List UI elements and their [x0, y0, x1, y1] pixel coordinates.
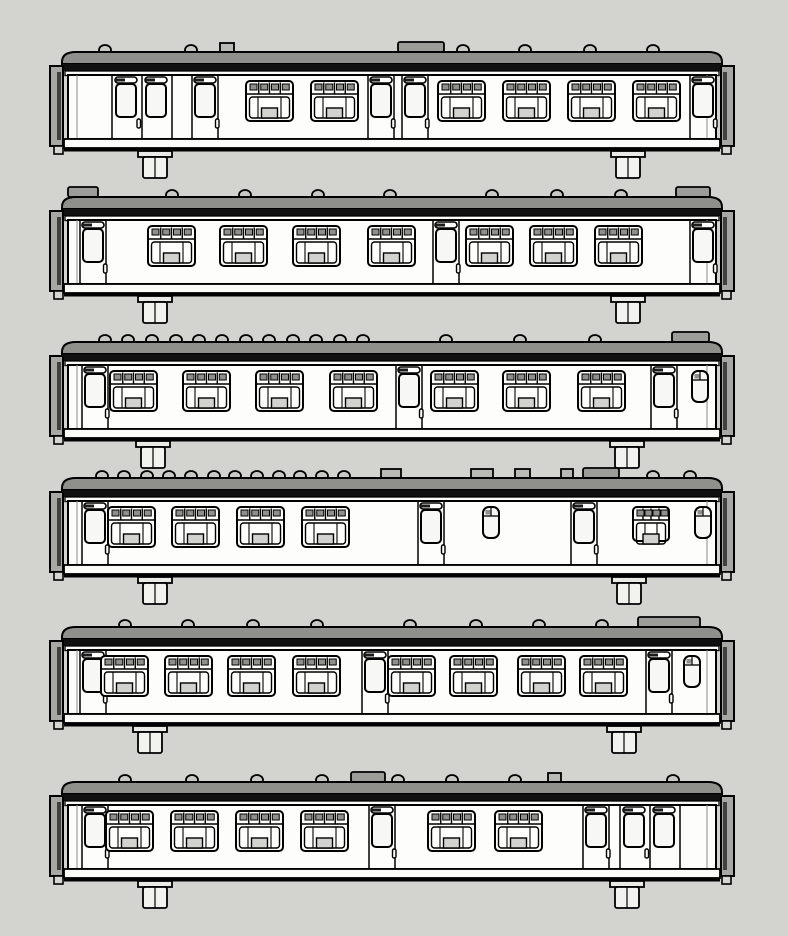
sliding-vent-pane	[454, 814, 461, 820]
sliding-vent-pane	[443, 814, 450, 820]
sliding-vent-pane	[446, 374, 453, 380]
door-handle	[442, 545, 446, 554]
door-handle	[675, 409, 679, 418]
sliding-vent-pane	[572, 84, 579, 90]
sliding-vent-pane	[272, 814, 279, 820]
buffer-step	[54, 876, 63, 884]
window-sill-block	[511, 838, 527, 848]
sliding-vent-pane	[235, 229, 242, 235]
sliding-vent-pane	[184, 229, 191, 235]
sliding-vent-pane	[246, 229, 253, 235]
roof-tank-box	[398, 42, 444, 52]
sliding-vent-pane	[208, 510, 215, 516]
roof-shadow-stripe	[63, 354, 721, 361]
sliding-vent-pane	[698, 510, 703, 515]
sliding-vent-pane	[306, 510, 313, 516]
window-sill-block	[124, 534, 140, 544]
sliding-vent-pane	[454, 659, 461, 665]
sliding-vent-pane	[492, 229, 499, 235]
door-vent-slide	[399, 369, 408, 372]
sliding-vent-pane	[442, 84, 449, 90]
gangway-shadow	[723, 802, 727, 870]
window-sill-block	[594, 398, 610, 408]
sliding-vent-pane	[474, 84, 481, 90]
sliding-vent-pane	[254, 659, 261, 665]
window-sill-block	[181, 683, 197, 693]
door-vent-slide	[371, 79, 380, 82]
sliding-vent-pane	[175, 814, 182, 820]
window-sill-block	[122, 838, 138, 848]
door-handle	[714, 264, 718, 273]
sliding-vent-pane	[457, 374, 464, 380]
window-sill-block	[454, 108, 470, 118]
sliding-vent-pane	[146, 374, 153, 380]
underframe-flange	[138, 881, 172, 887]
sliding-vent-pane	[329, 659, 336, 665]
underframe-flange	[138, 577, 172, 583]
sliding-vent-pane	[112, 510, 119, 516]
sliding-vent-pane	[383, 229, 390, 235]
gangway-end-slab	[721, 796, 734, 876]
sliding-vent-pane	[507, 84, 514, 90]
door-handle	[595, 545, 599, 554]
door-vent-slide	[85, 369, 94, 372]
window-sill-block	[188, 534, 204, 544]
sliding-vent-pane	[327, 814, 334, 820]
door-vent-slide	[693, 79, 702, 82]
sliding-vent-pane	[262, 814, 269, 820]
door-droplight-window	[399, 374, 419, 407]
gangway-end-slab	[721, 492, 734, 572]
roof-tank-box	[68, 187, 98, 197]
sliding-vent-pane	[486, 659, 493, 665]
coach-2-drawing	[0, 181, 788, 333]
sliding-vent-pane	[645, 510, 652, 516]
sliding-vent-pane	[261, 84, 268, 90]
door-droplight-window	[85, 510, 105, 543]
sliding-vent-pane	[105, 659, 112, 665]
door-vent-slide	[116, 79, 125, 82]
sliding-vent-pane	[356, 374, 363, 380]
window-sill-block	[117, 683, 133, 693]
window-sill-block	[244, 683, 260, 693]
buffer-step	[722, 572, 731, 580]
sliding-vent-pane	[534, 229, 541, 235]
coach-2-side-elevation	[0, 181, 788, 333]
sliding-vent-pane	[424, 659, 431, 665]
coach-6-drawing	[0, 766, 788, 918]
door-vent-slide	[649, 654, 658, 657]
sliding-vent-pane	[464, 814, 471, 820]
window-sill-block	[534, 683, 550, 693]
buffer-step	[54, 572, 63, 580]
window-sill-block	[519, 108, 535, 118]
gangway-end-slab	[50, 66, 63, 146]
coach-roof	[62, 478, 722, 490]
window-sill-block	[447, 398, 463, 408]
door-handle	[420, 409, 424, 418]
sliding-vent-pane	[137, 659, 144, 665]
underframe-flange	[133, 726, 167, 732]
door-handle	[216, 119, 220, 128]
sliding-vent-pane	[232, 659, 239, 665]
buffer-step	[722, 876, 731, 884]
coach-roof	[62, 782, 722, 794]
door-handle	[714, 119, 718, 128]
coach-6-side-elevation	[0, 766, 788, 918]
door-handle	[645, 849, 649, 858]
door-vent-slide	[83, 224, 92, 227]
sliding-vent-pane	[531, 814, 538, 820]
window-sill-block	[596, 683, 612, 693]
gangway-end-slab	[50, 796, 63, 876]
gangway-end-slab	[50, 356, 63, 436]
window-sill-block	[384, 253, 400, 263]
door-droplight-window	[365, 659, 385, 692]
sliding-vent-pane	[659, 84, 666, 90]
sliding-vent-pane	[584, 659, 591, 665]
sliding-vent-pane	[256, 229, 263, 235]
sliding-vent-pane	[502, 229, 509, 235]
sliding-vent-pane	[687, 659, 692, 664]
gangway-end-slab	[50, 641, 63, 721]
sliding-vent-pane	[521, 814, 528, 820]
sliding-vent-pane	[465, 659, 472, 665]
gangway-shadow	[57, 647, 61, 715]
sliding-vent-pane	[594, 84, 601, 90]
buffer-step	[722, 436, 731, 444]
door-vent-slide	[654, 809, 663, 812]
gangway-end-slab	[721, 66, 734, 146]
window-sill-block	[466, 683, 482, 693]
sliding-vent-pane	[319, 229, 326, 235]
sliding-vent-pane	[116, 659, 123, 665]
door-droplight-window	[195, 84, 215, 117]
sliding-vent-pane	[271, 374, 278, 380]
door-vent-slide	[83, 654, 92, 657]
sliding-vent-pane	[326, 84, 333, 90]
sliding-vent-pane	[695, 374, 700, 379]
window-sill-block	[327, 108, 343, 118]
door-handle	[457, 264, 461, 273]
sliding-vent-pane	[545, 229, 552, 235]
window-sill-block	[164, 253, 180, 263]
sill-band	[64, 139, 720, 148]
gangway-end-slab	[721, 211, 734, 291]
roof-shadow-stripe	[63, 490, 721, 497]
sliding-vent-pane	[142, 814, 149, 820]
window-sill-block	[482, 253, 498, 263]
gangway-end-slab	[721, 356, 734, 436]
sliding-vent-pane	[197, 814, 204, 820]
sliding-vent-pane	[347, 84, 354, 90]
sliding-vent-pane	[121, 814, 128, 820]
gangway-shadow	[57, 498, 61, 566]
sliding-vent-pane	[599, 229, 606, 235]
window-sill-block	[519, 398, 535, 408]
sliding-vent-pane	[486, 510, 491, 515]
sliding-vent-pane	[305, 814, 312, 820]
window-sill-block	[318, 534, 334, 544]
sliding-vent-pane	[264, 659, 271, 665]
sliding-vent-pane	[209, 374, 216, 380]
gangway-end-slab	[50, 211, 63, 291]
sliding-vent-pane	[606, 659, 613, 665]
sliding-vent-pane	[556, 229, 563, 235]
sliding-vent-pane	[163, 229, 170, 235]
door-vent-slide	[586, 809, 595, 812]
sliding-vent-pane	[518, 84, 525, 90]
door-droplight-window	[372, 814, 392, 847]
sliding-vent-pane	[250, 84, 257, 90]
roof-vent-box	[220, 43, 234, 52]
gangway-shadow	[57, 802, 61, 870]
sliding-vent-pane	[481, 229, 488, 235]
buffer-step	[54, 436, 63, 444]
underframe-flange	[610, 881, 644, 887]
gangway-shadow	[723, 647, 727, 715]
door-droplight-window	[436, 229, 456, 262]
sliding-vent-pane	[169, 659, 176, 665]
sliding-vent-pane	[319, 659, 326, 665]
door-droplight-window	[624, 814, 644, 847]
sliding-vent-pane	[110, 814, 117, 820]
door-handle	[392, 119, 396, 128]
door-droplight-window	[654, 374, 674, 407]
door-droplight-window	[146, 84, 166, 117]
door-droplight-window	[693, 229, 713, 262]
sliding-vent-pane	[224, 229, 231, 235]
door-vent-slide	[372, 809, 381, 812]
sill-band	[64, 284, 720, 293]
coach-roof	[62, 52, 722, 64]
sliding-vent-pane	[328, 510, 335, 516]
sliding-vent-pane	[198, 510, 205, 516]
sliding-vent-pane	[453, 84, 460, 90]
roof-tank-box	[676, 187, 710, 197]
window-sill-block	[649, 108, 665, 118]
sliding-vent-pane	[631, 229, 638, 235]
sliding-vent-pane	[392, 659, 399, 665]
door-vent-slide	[624, 809, 633, 812]
door-vent-slide	[85, 505, 94, 508]
window-sill-block	[272, 398, 288, 408]
sliding-vent-pane	[621, 229, 628, 235]
sliding-vent-pane	[593, 374, 600, 380]
sliding-vent-pane	[582, 374, 589, 380]
sliding-vent-pane	[338, 510, 345, 516]
sliding-vent-pane	[219, 374, 226, 380]
sliding-vent-pane	[529, 374, 536, 380]
sliding-vent-pane	[544, 659, 551, 665]
coach-5-drawing	[0, 611, 788, 763]
gangway-shadow	[57, 72, 61, 140]
sliding-vent-pane	[470, 229, 477, 235]
coach-4-side-elevation	[0, 462, 788, 614]
buffer-step	[54, 291, 63, 299]
sliding-vent-pane	[186, 814, 193, 820]
coach-roof	[62, 342, 722, 354]
sliding-vent-pane	[132, 814, 139, 820]
sliding-vent-pane	[414, 659, 421, 665]
sliding-vent-pane	[187, 374, 194, 380]
sliding-vent-pane	[539, 374, 546, 380]
sliding-vent-pane	[614, 374, 621, 380]
sliding-vent-pane	[152, 229, 159, 235]
door-droplight-window	[654, 814, 674, 847]
sliding-vent-pane	[554, 659, 561, 665]
roof-tank-box	[672, 332, 709, 342]
sliding-vent-pane	[125, 374, 132, 380]
door-vent-slide	[195, 79, 204, 82]
window-sill-block	[309, 253, 325, 263]
sill-band	[64, 429, 720, 438]
gangway-end-slab	[50, 492, 63, 572]
door-vent-slide	[85, 809, 94, 812]
sliding-vent-pane	[308, 659, 315, 665]
sliding-vent-pane	[539, 84, 546, 90]
sliding-vent-pane	[127, 659, 134, 665]
window-sill-block	[444, 838, 460, 848]
sliding-vent-pane	[263, 510, 270, 516]
sliding-vent-pane	[648, 84, 655, 90]
roof-tank-box	[638, 617, 700, 627]
coach-5-side-elevation	[0, 611, 788, 763]
gangway-shadow	[57, 217, 61, 285]
sliding-vent-pane	[637, 510, 644, 516]
roof-vent-box	[381, 469, 401, 478]
sliding-vent-pane	[308, 229, 315, 235]
window-sill-block	[584, 108, 600, 118]
coach-4-drawing	[0, 462, 788, 614]
door-droplight-window	[83, 229, 103, 262]
coach-body	[68, 501, 716, 565]
roof-shadow-stripe	[63, 209, 721, 216]
sliding-vent-pane	[661, 510, 668, 516]
sliding-vent-pane	[366, 374, 373, 380]
sliding-vent-pane	[260, 374, 267, 380]
door-handle	[607, 849, 611, 858]
sliding-vent-pane	[518, 374, 525, 380]
door-handle	[426, 119, 430, 128]
sliding-vent-pane	[669, 84, 676, 90]
roof-shadow-stripe	[63, 639, 721, 646]
window-sill-block	[346, 398, 362, 408]
door-handle	[104, 264, 108, 273]
sliding-vent-pane	[273, 510, 280, 516]
sliding-vent-pane	[616, 659, 623, 665]
sliding-vent-pane	[191, 659, 198, 665]
roof-shadow-stripe	[63, 794, 721, 801]
gangway-shadow	[723, 498, 727, 566]
sliding-vent-pane	[134, 510, 141, 516]
sill-band	[64, 714, 720, 723]
sliding-vent-pane	[201, 659, 208, 665]
coach-1-drawing	[0, 36, 788, 188]
buffer-step	[722, 291, 731, 299]
sliding-vent-pane	[337, 84, 344, 90]
door-droplight-window	[693, 84, 713, 117]
sliding-vent-pane	[372, 229, 379, 235]
underframe-flange	[607, 726, 641, 732]
sliding-vent-pane	[187, 510, 194, 516]
sliding-vent-pane	[252, 510, 259, 516]
door-vent-slide	[421, 505, 430, 508]
sliding-vent-pane	[241, 510, 248, 516]
door-vent-slide	[693, 224, 702, 227]
door-droplight-window	[421, 510, 441, 543]
door-droplight-window	[405, 84, 425, 117]
window-sill-block	[317, 838, 333, 848]
sliding-vent-pane	[316, 814, 323, 820]
window-sill-block	[309, 683, 325, 693]
sliding-vent-pane	[282, 84, 289, 90]
window-sill-block	[546, 253, 562, 263]
door-droplight-window	[649, 659, 669, 692]
door-droplight-window	[116, 84, 136, 117]
gangway-shadow	[57, 362, 61, 430]
door-vent-slide	[365, 654, 374, 657]
sliding-vent-pane	[282, 374, 289, 380]
roof-vent-box	[471, 469, 493, 478]
sliding-vent-pane	[604, 374, 611, 380]
sliding-vent-pane	[583, 84, 590, 90]
sliding-vent-pane	[317, 510, 324, 516]
sliding-vent-pane	[198, 374, 205, 380]
sliding-vent-pane	[136, 374, 143, 380]
coach-roof	[62, 627, 722, 639]
door-droplight-window	[586, 814, 606, 847]
window-sill-block	[643, 534, 659, 544]
sliding-vent-pane	[180, 659, 187, 665]
sliding-vent-pane	[404, 229, 411, 235]
door-vent-slide	[574, 505, 583, 508]
sliding-vent-pane	[566, 229, 573, 235]
sliding-vent-pane	[329, 229, 336, 235]
buffer-step	[722, 146, 731, 154]
window-sill-block	[253, 534, 269, 544]
door-handle	[393, 849, 397, 858]
gangway-shadow	[723, 362, 727, 430]
diagram-canvas	[0, 0, 788, 936]
sliding-vent-pane	[529, 84, 536, 90]
roof-vent-box	[515, 469, 530, 478]
sliding-vent-pane	[510, 814, 517, 820]
door-droplight-window	[85, 814, 105, 847]
sliding-vent-pane	[123, 510, 130, 516]
roof-shadow-stripe	[63, 64, 721, 71]
sliding-vent-pane	[240, 814, 247, 820]
sliding-vent-pane	[297, 229, 304, 235]
sliding-vent-pane	[533, 659, 540, 665]
coach-1-side-elevation	[0, 36, 788, 188]
sliding-vent-pane	[337, 814, 344, 820]
door-handle	[670, 694, 674, 703]
sliding-vent-pane	[476, 659, 483, 665]
door-vent-slide	[654, 369, 663, 372]
sliding-vent-pane	[207, 814, 214, 820]
roof-vent-box	[561, 469, 573, 478]
coach-3-drawing	[0, 326, 788, 478]
sliding-vent-pane	[435, 374, 442, 380]
sill-band	[64, 869, 720, 878]
roof-tank-box	[351, 772, 385, 782]
window-sill-block	[126, 398, 142, 408]
sliding-vent-pane	[394, 229, 401, 235]
sliding-vent-pane	[243, 659, 250, 665]
door-droplight-window	[371, 84, 391, 117]
sliding-vent-pane	[144, 510, 151, 516]
